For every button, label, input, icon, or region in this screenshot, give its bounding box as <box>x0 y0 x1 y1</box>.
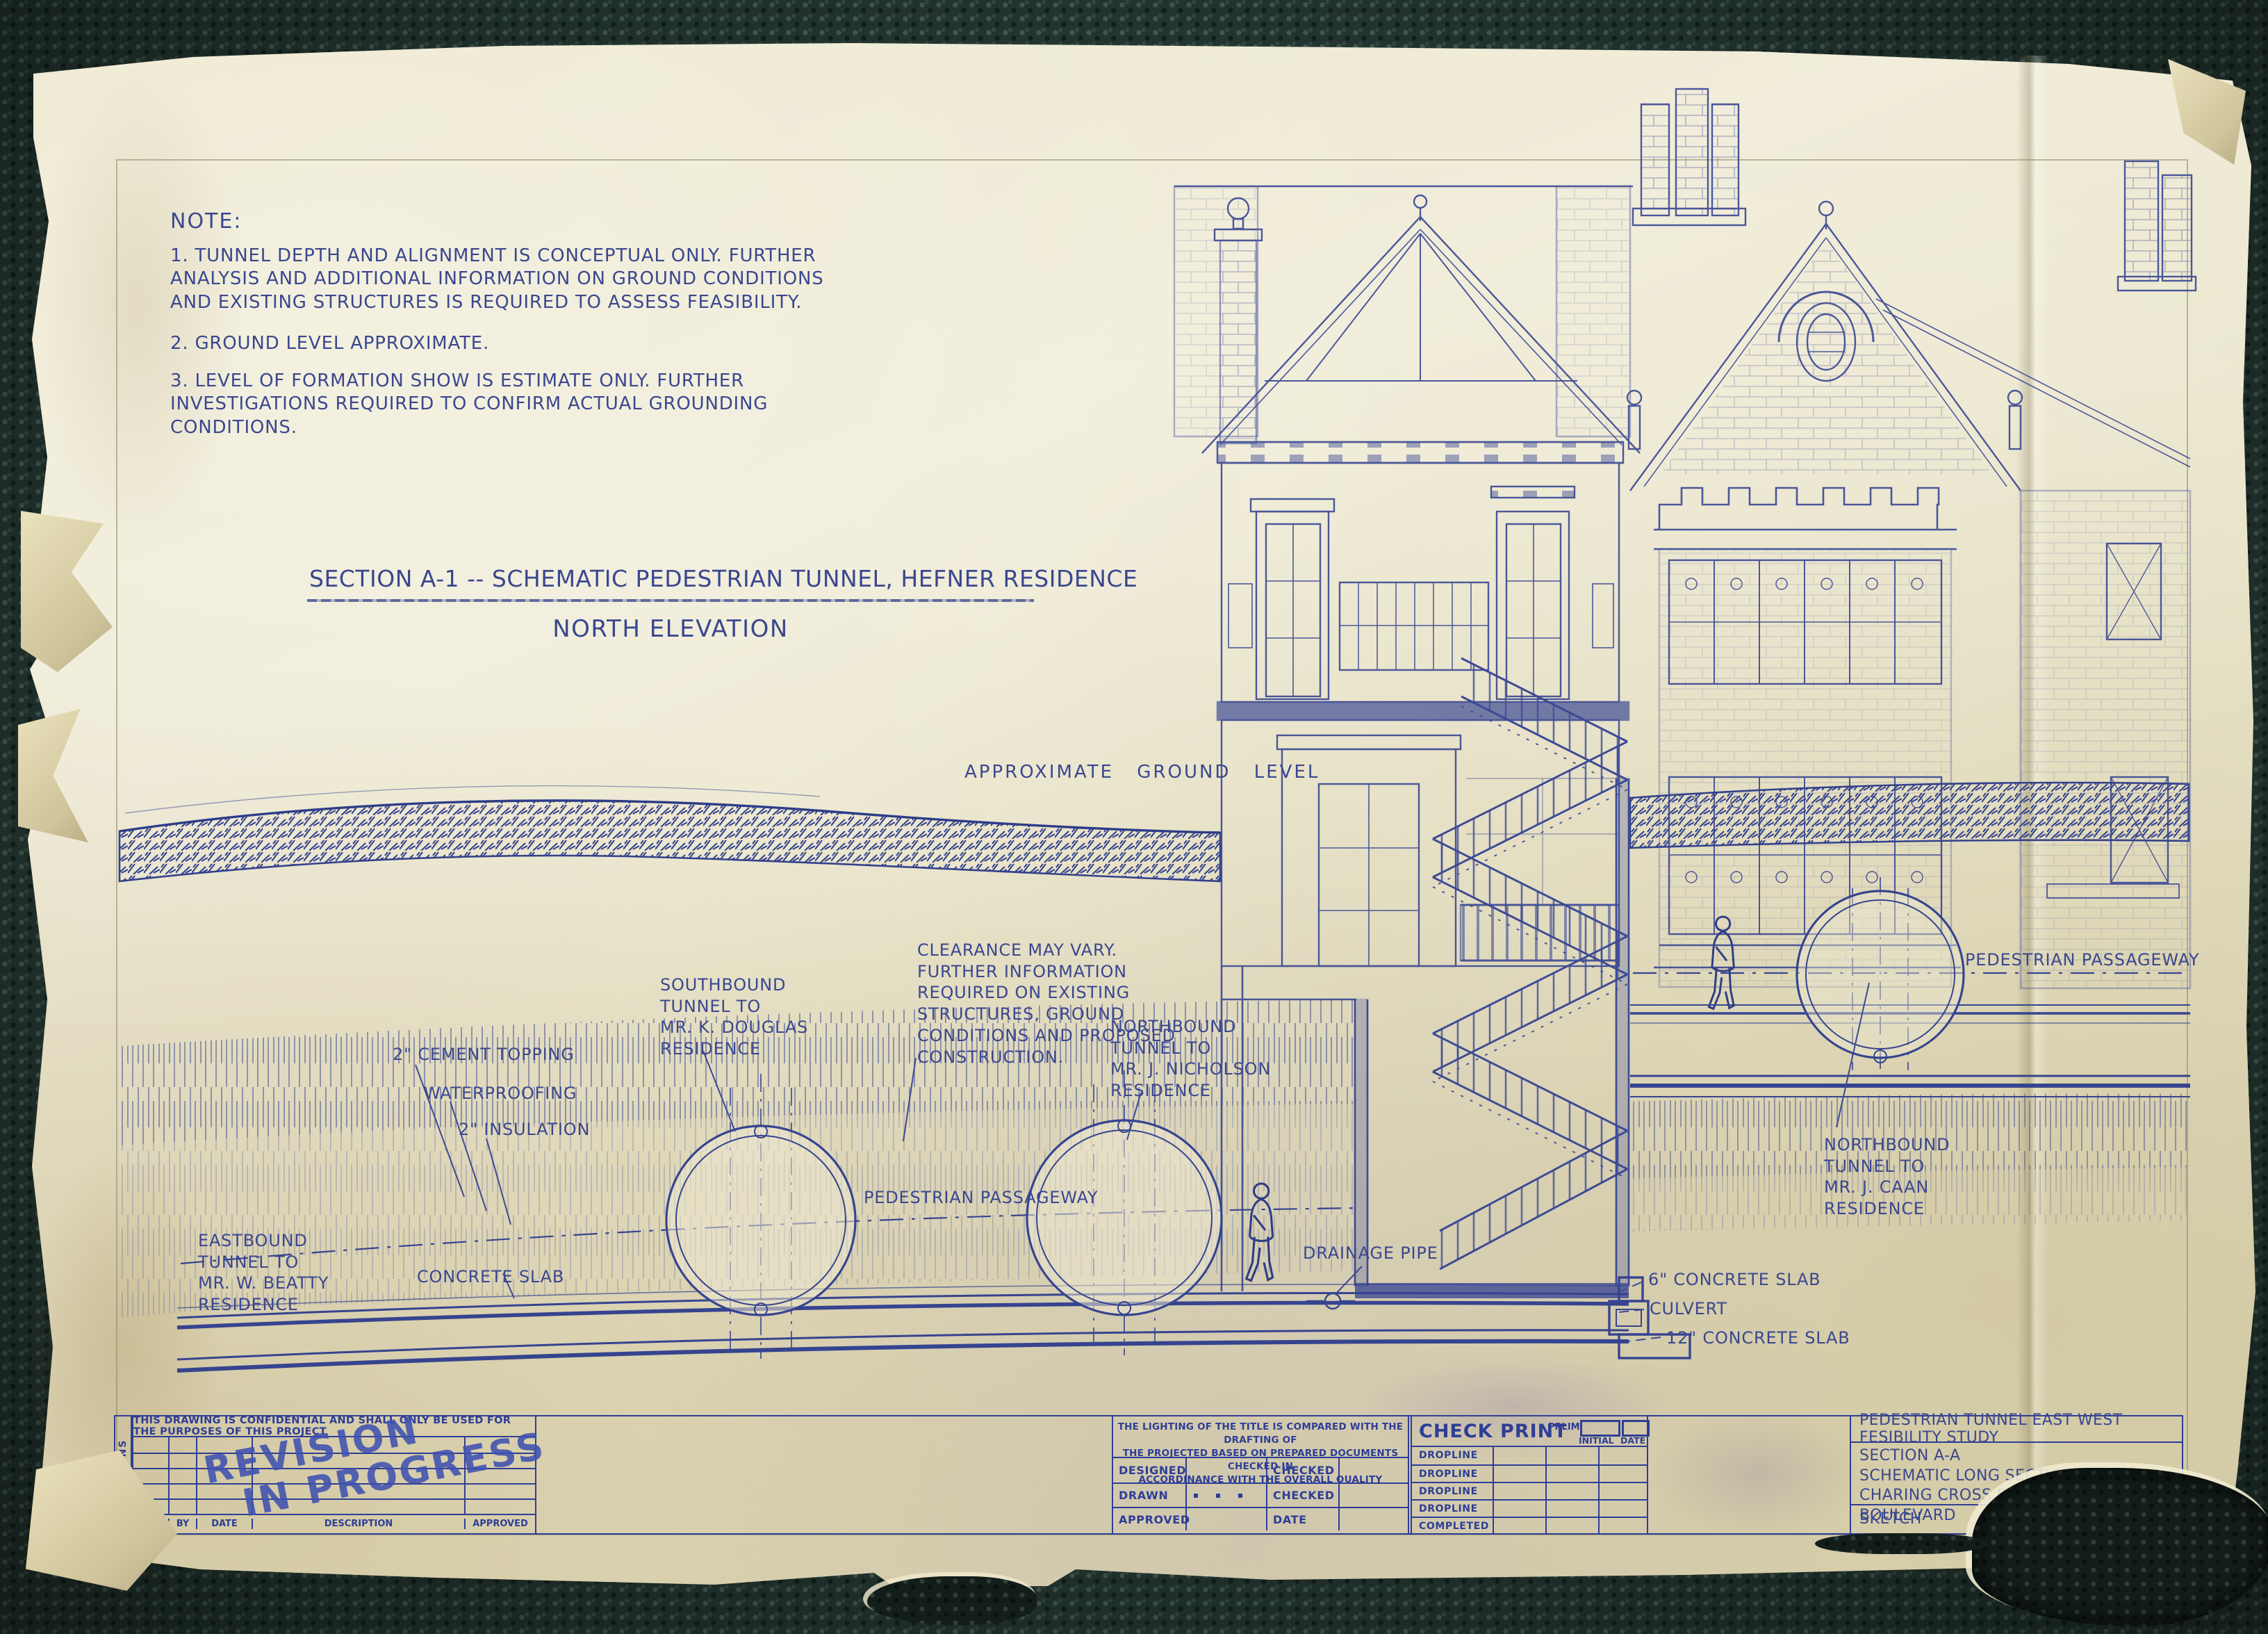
tear-hole-tail <box>1815 1533 1989 1554</box>
check-print-row: DROPLINE <box>1412 1447 1647 1464</box>
check-print-block: CHECK PRINT PRLIM INITIAL DATE DROPLINE … <box>1411 1415 1648 1535</box>
col-approved: APPROVED <box>466 1519 535 1529</box>
drawn-label: DRAWN <box>1113 1484 1187 1507</box>
notes-heading: NOTE: <box>170 209 242 235</box>
label-eastbound-tunnel: EASTBOUND TUNNEL TO MR. W. BEATTY RESIDE… <box>198 1230 329 1316</box>
label-southbound-tunnel: SOUTHBOUND TUNNEL TO MR. K. DOUGLAS RESI… <box>660 974 808 1060</box>
label-northbound-nicholson: NORTHBOUND TUNNEL TO MR. J. NICHOLSON RE… <box>1110 1016 1271 1102</box>
check-print-row: DROPLINE <box>1412 1499 1647 1517</box>
col-by: BY <box>170 1519 197 1529</box>
initial-label: INITIAL <box>1579 1435 1614 1446</box>
label-pedestrian-passageway-left: PEDESTRIAN PASSAGEWAY <box>864 1187 1098 1209</box>
label-concrete-slab: CONCRETE SLAB <box>417 1266 564 1288</box>
label-pedestrian-passageway-right: PEDESTRIAN PASSAGEWAY <box>1965 949 2199 971</box>
approved-label: APPROVED <box>1113 1508 1187 1530</box>
check-print-row: DROPLINE <box>1412 1482 1647 1499</box>
date-label: DATE <box>1620 1435 1645 1446</box>
dropline-label: DROPLINE <box>1412 1447 1494 1464</box>
label-waterproofing: WATERPROOFING <box>424 1083 577 1104</box>
dropline-label: DROPLINE <box>1412 1501 1494 1517</box>
label-culvert: CULVERT <box>1650 1298 1727 1320</box>
dropline-label: DROPLINE <box>1412 1483 1494 1499</box>
quality-note: THE LIGHTING OF THE TITLE IS COMPARED WI… <box>1113 1416 1408 1458</box>
date-label: DATE <box>1267 1508 1340 1530</box>
checked-label: CHECKED <box>1267 1458 1340 1482</box>
dropline-label: DROPLINE <box>1412 1466 1494 1482</box>
note-2: 2. GROUND LEVEL APPROXIMATE. <box>170 332 489 355</box>
label-insulation: 2" INSULATION <box>459 1119 590 1141</box>
check-print-header: CHECK PRINT PRLIM INITIAL DATE <box>1412 1416 1647 1447</box>
label-concrete-slab-12: 12" CONCRETE SLAB <box>1666 1327 1850 1349</box>
note-3: 3. LEVEL OF FORMATION SHOW IS ESTIMATE O… <box>170 370 768 439</box>
prlim-label: PRLIM <box>1548 1422 1580 1432</box>
note-1: 1. TUNNEL DEPTH AND ALIGNMENT IS CONCEPT… <box>170 245 824 314</box>
sign-row: APPROVED DATE <box>1113 1507 1408 1530</box>
study-title: PEDESTRIAN TUNNEL EAST WEST FESIBILITY S… <box>1851 1416 2182 1443</box>
date-box <box>1622 1420 1650 1437</box>
label-drainage-pipe: DRAINAGE PIPE <box>1303 1243 1438 1264</box>
sign-row: DRAWN CHECKED <box>1113 1482 1408 1507</box>
check-print-row: DROPLINE <box>1412 1464 1647 1482</box>
tear-hole-bottom-right <box>1972 1468 2268 1626</box>
section-subtitle: NORTH ELEVATION <box>552 614 789 645</box>
label-concrete-slab-6: 6" CONCRETE SLAB <box>1648 1269 1821 1291</box>
sign-row: DESIGNED CHECKED <box>1113 1458 1408 1482</box>
designed-label: DESIGNED <box>1113 1458 1187 1482</box>
col-description: DESCRIPTION <box>253 1519 466 1529</box>
check-print-title: CHECK PRINT <box>1419 1421 1568 1442</box>
completed-label: COMPLETED <box>1412 1518 1494 1533</box>
quality-signature-block: THE LIGHTING OF THE TITLE IS COMPARED WI… <box>1112 1415 1409 1535</box>
check-print-row: COMPLETED <box>1412 1517 1647 1533</box>
prlim-initial-box <box>1580 1420 1620 1437</box>
label-ground-level: APPROXIMATE GROUND LEVEL <box>964 761 1320 784</box>
section-title-underline <box>307 599 1034 602</box>
checked-label: CHECKED <box>1267 1484 1340 1507</box>
zigzag-stairs <box>1433 658 1627 1269</box>
section-title: SECTION A-1 -- SCHEMATIC PEDESTRIAN TUNN… <box>309 564 1137 594</box>
label-cement-topping: 2" CEMENT TOPPING <box>393 1044 575 1065</box>
revision-header-row: SRC BY DATE DESCRIPTION APPROVED <box>133 1514 535 1532</box>
photo-of-blueprint: { "colors": {"ink": "#3a478f", "paper": … <box>0 0 2268 1634</box>
tear-hole-bottom-center <box>867 1576 1037 1625</box>
label-northbound-caan: NORTHBOUND TUNNEL TO MR. J. CAAN RESIDEN… <box>1824 1134 1950 1220</box>
